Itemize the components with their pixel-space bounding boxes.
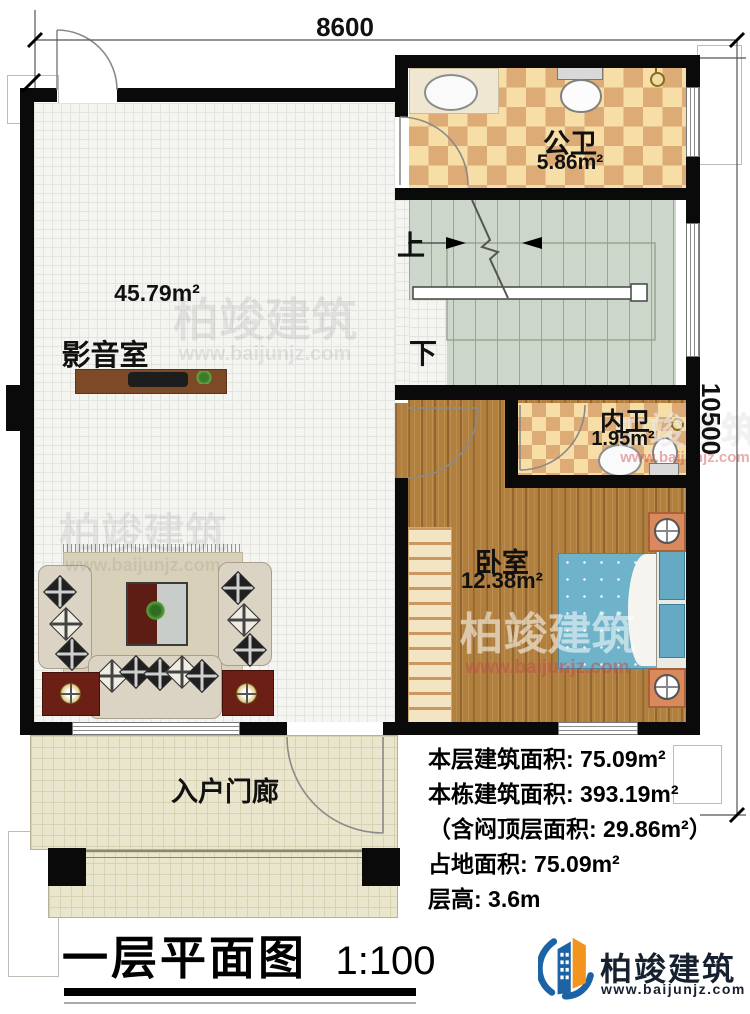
ensuite-shower-head — [671, 418, 684, 431]
info-line: 本栋建筑面积: 393.19m² — [428, 777, 750, 812]
staircase-floor — [409, 198, 676, 385]
toilet-bowl — [560, 79, 602, 113]
wall-left — [20, 88, 34, 735]
nightstand-lamp — [654, 674, 680, 700]
dimension-top-label: 8600 — [285, 12, 405, 43]
wall-bottom-a — [20, 722, 75, 735]
window-livingroom — [72, 722, 240, 735]
wall-bottom-d — [638, 722, 700, 735]
title-block: 一层平面图 1:100 — [62, 922, 436, 988]
wall-bottom-b — [240, 722, 287, 735]
info-line: 占地面积: 75.09m² — [428, 847, 750, 882]
bed-pillow — [659, 604, 685, 658]
room-area-media: 45.79m² — [102, 280, 212, 307]
title-underline — [64, 988, 416, 996]
tv-plant — [196, 371, 212, 384]
info-line: 本层建筑面积: 75.09m² — [428, 742, 750, 777]
wall-publicbath-top — [395, 55, 700, 68]
dimension-right-label: 10500 — [700, 374, 726, 464]
porch-pillar-left — [48, 848, 86, 886]
bedroom-door-threshold — [395, 403, 408, 478]
wardrobe — [408, 527, 452, 723]
wall-bedroom-left — [395, 478, 408, 722]
room-label-media: 影音室 — [50, 332, 160, 374]
porch-pillar-right — [362, 848, 400, 886]
company-logo-url: www.baijunjz.com — [601, 981, 746, 997]
wall-publicbath-left — [395, 55, 408, 117]
porch-steps — [48, 850, 398, 918]
table-lamp — [236, 683, 257, 704]
page-title: 一层平面图 — [62, 932, 307, 984]
wall-top-b — [117, 88, 395, 102]
porch-step-line — [48, 857, 398, 858]
toilet-tank — [557, 66, 603, 80]
wall-ensuite-bottom — [505, 475, 686, 488]
wall-below-publicbath — [395, 188, 700, 200]
wall-bedroom-top — [395, 385, 686, 400]
room-area-ensuite: 1.95m² — [578, 428, 668, 451]
info-line: （含闷顶层面积: 29.86m²） — [428, 812, 750, 847]
table-lamp — [60, 683, 81, 704]
rug-fringe — [63, 544, 241, 552]
nightstand-lamp — [654, 518, 680, 544]
room-area-publicbath: 5.86m² — [520, 151, 620, 175]
table-plant — [146, 601, 165, 620]
title-underline-thin — [64, 1002, 416, 1004]
exterior-box-topright — [697, 45, 742, 165]
tv — [128, 372, 188, 387]
window-bedroom — [558, 722, 638, 735]
window-stairs — [686, 223, 700, 357]
window-publicbath — [686, 87, 700, 157]
room-area-bedroom: 12.38m² — [452, 568, 552, 594]
area-info-block: 本层建筑面积: 75.09m² 本栋建筑面积: 393.19m² （含闷顶层面积… — [428, 742, 750, 917]
title-scale: 1:100 — [335, 939, 435, 983]
wall-bottom-c — [383, 722, 558, 735]
company-logo-icon — [538, 934, 596, 1000]
wall-top-a — [20, 88, 57, 102]
stairs-down-label: 下 — [406, 332, 440, 372]
stairs-up-label: 上 — [394, 224, 428, 264]
wall-pier-left — [6, 385, 20, 431]
bed-pillow — [659, 546, 685, 600]
sink — [424, 74, 478, 111]
shower-head — [650, 72, 665, 87]
info-line: 层高: 3.6m — [428, 882, 750, 917]
wall-ensuite-left — [505, 400, 518, 478]
floor-plan-page: 柏竣建筑 www.baijunjz.com 柏竣建筑 www.baijunjz.… — [0, 0, 750, 1014]
room-label-porch: 入户门廊 — [160, 770, 290, 809]
bed-duvet — [628, 554, 658, 666]
